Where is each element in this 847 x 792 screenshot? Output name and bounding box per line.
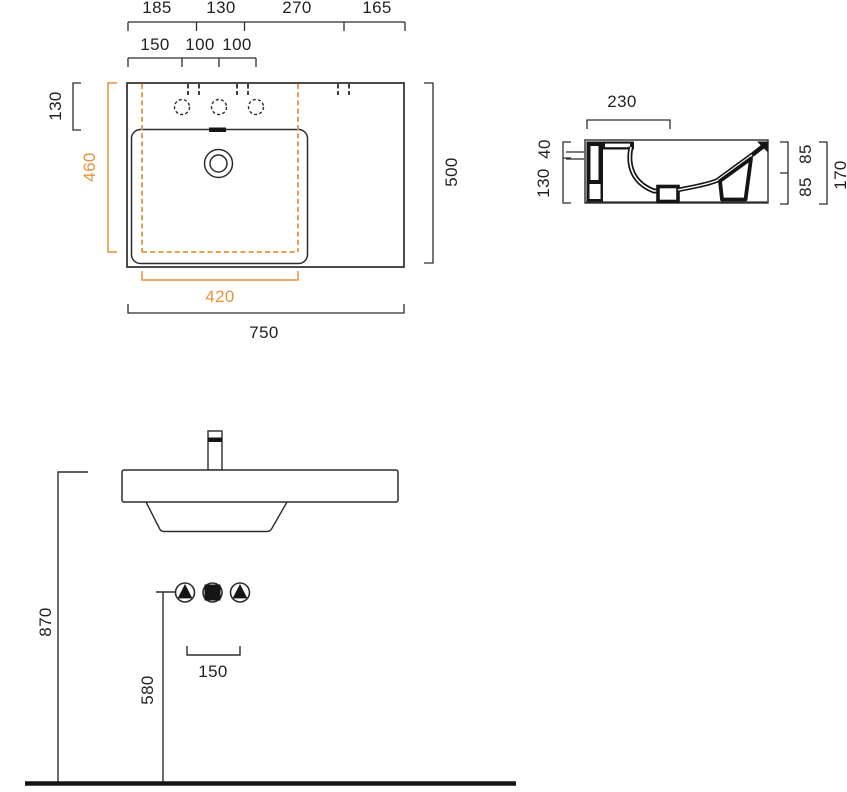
dim-line-connection-height: [156, 592, 176, 783]
overflow-mark: [209, 128, 226, 133]
drain-square: [205, 585, 221, 601]
dim-label-connection-height: 580: [138, 675, 158, 705]
dim-bracket-deck-depth: [73, 83, 81, 130]
tap-hole-icon: [175, 100, 190, 115]
drain-icon-inner: [210, 155, 227, 172]
line-art: [0, 0, 847, 792]
dim-bracket-bowl-width: [142, 271, 298, 280]
dim-chain-tap-holes: [128, 58, 256, 67]
dim-label-rim-thickness: 40: [535, 139, 555, 159]
dim-bracket-overall-width: [128, 304, 404, 313]
cold-water-triangle: [233, 584, 248, 598]
dim-line-rim-height: [58, 472, 88, 785]
dim-bracket-deck-width: [587, 120, 670, 129]
dim-label-100-a: 100: [185, 35, 215, 55]
dim-bracket-front-heights: [780, 142, 788, 204]
faucet-front: [208, 431, 222, 470]
dim-label-bowl-width: 420: [205, 287, 235, 307]
dim-label-front-upper: 85: [796, 144, 816, 164]
dim-label-185: 185: [142, 0, 172, 18]
dim-bracket-overall-depth: [424, 83, 433, 263]
top-view: [73, 22, 433, 313]
section-left-wall-slot: [591, 146, 599, 180]
dim-label-deck-depth: 130: [46, 91, 66, 121]
dim-chain-top: [128, 22, 405, 31]
mounting-ticks: [188, 84, 349, 95]
hot-water-triangle: [178, 584, 193, 598]
basin-outline: [127, 83, 404, 267]
dim-label-overall-depth: 500: [442, 157, 462, 187]
dim-label-rim-height: 870: [36, 607, 56, 637]
connection-symbols: [176, 583, 250, 602]
dim-label-skirt-height: 130: [534, 168, 554, 198]
dim-bracket-left-heights: [563, 142, 571, 203]
section-tap-deck-slot: [605, 144, 630, 148]
dim-label-bowl-depth: 460: [80, 152, 100, 182]
dim-label-150-holes: 150: [140, 35, 170, 55]
section-left-wall-lower: [590, 184, 601, 199]
front-view: [25, 431, 516, 785]
dim-bracket-drain-offset: [187, 646, 240, 655]
dim-label-drain-offset: 150: [198, 662, 228, 682]
tap-holes: [175, 100, 264, 115]
dim-label-165: 165: [362, 0, 392, 18]
dim-label-deck-width: 230: [607, 92, 637, 112]
slab-front: [122, 470, 398, 502]
dim-label-total-height: 170: [831, 160, 847, 190]
technical-drawing-canvas: 185 130 270 165 150 100 100 130 460 500 …: [0, 0, 847, 792]
dim-label-270: 270: [282, 0, 312, 18]
drain-icon: [205, 150, 233, 178]
dim-bracket-total-height: [819, 142, 827, 204]
dim-label-overall-width: 750: [249, 323, 279, 343]
dim-label-130-chain: 130: [206, 0, 236, 18]
dim-label-front-lower: 85: [796, 177, 816, 197]
bowl-front: [146, 502, 287, 532]
section-drain: [658, 187, 678, 202]
faucet-band: [208, 438, 222, 443]
section-bowl-curve: [630, 147, 658, 191]
dim-label-100-b: 100: [222, 35, 252, 55]
tap-hole-icon: [249, 100, 264, 115]
tap-hole-icon: [212, 100, 227, 115]
install-zone-dashed: [142, 84, 298, 252]
side-view-section: [563, 120, 827, 204]
dim-bracket-bowl-depth: [108, 83, 117, 252]
